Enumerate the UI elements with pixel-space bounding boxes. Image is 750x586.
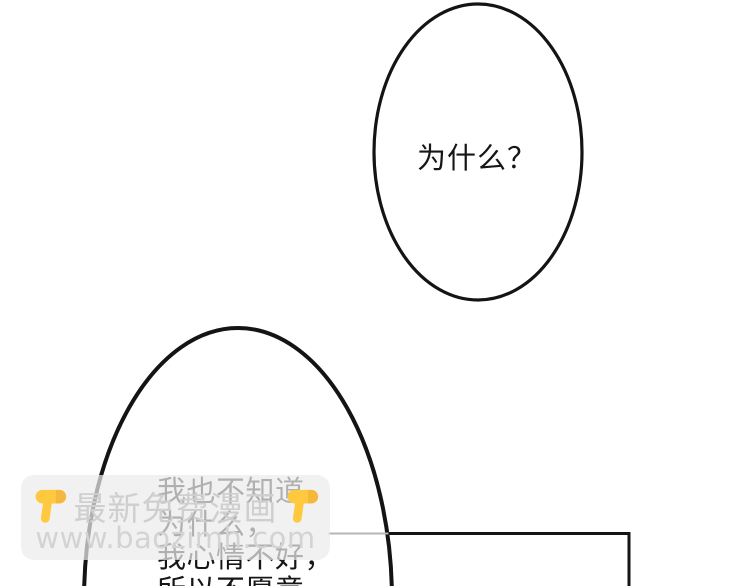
panel-border [389, 534, 630, 586]
watermark-url: www.baozimh.com [35, 525, 315, 551]
watermark: 最新免费漫画 www.baozimh.com [21, 475, 330, 560]
pointing-down-icon [33, 486, 67, 526]
pointing-down-icon [285, 486, 319, 526]
comic-page: 为什么？ 我也不知道 为什么， 我心情不好， 所以不愿意 最新免费漫画 www.… [0, 0, 750, 586]
bubble-text-why: 为什么？ [417, 135, 537, 177]
dialogue-line: 所以不愿意 [157, 574, 334, 586]
